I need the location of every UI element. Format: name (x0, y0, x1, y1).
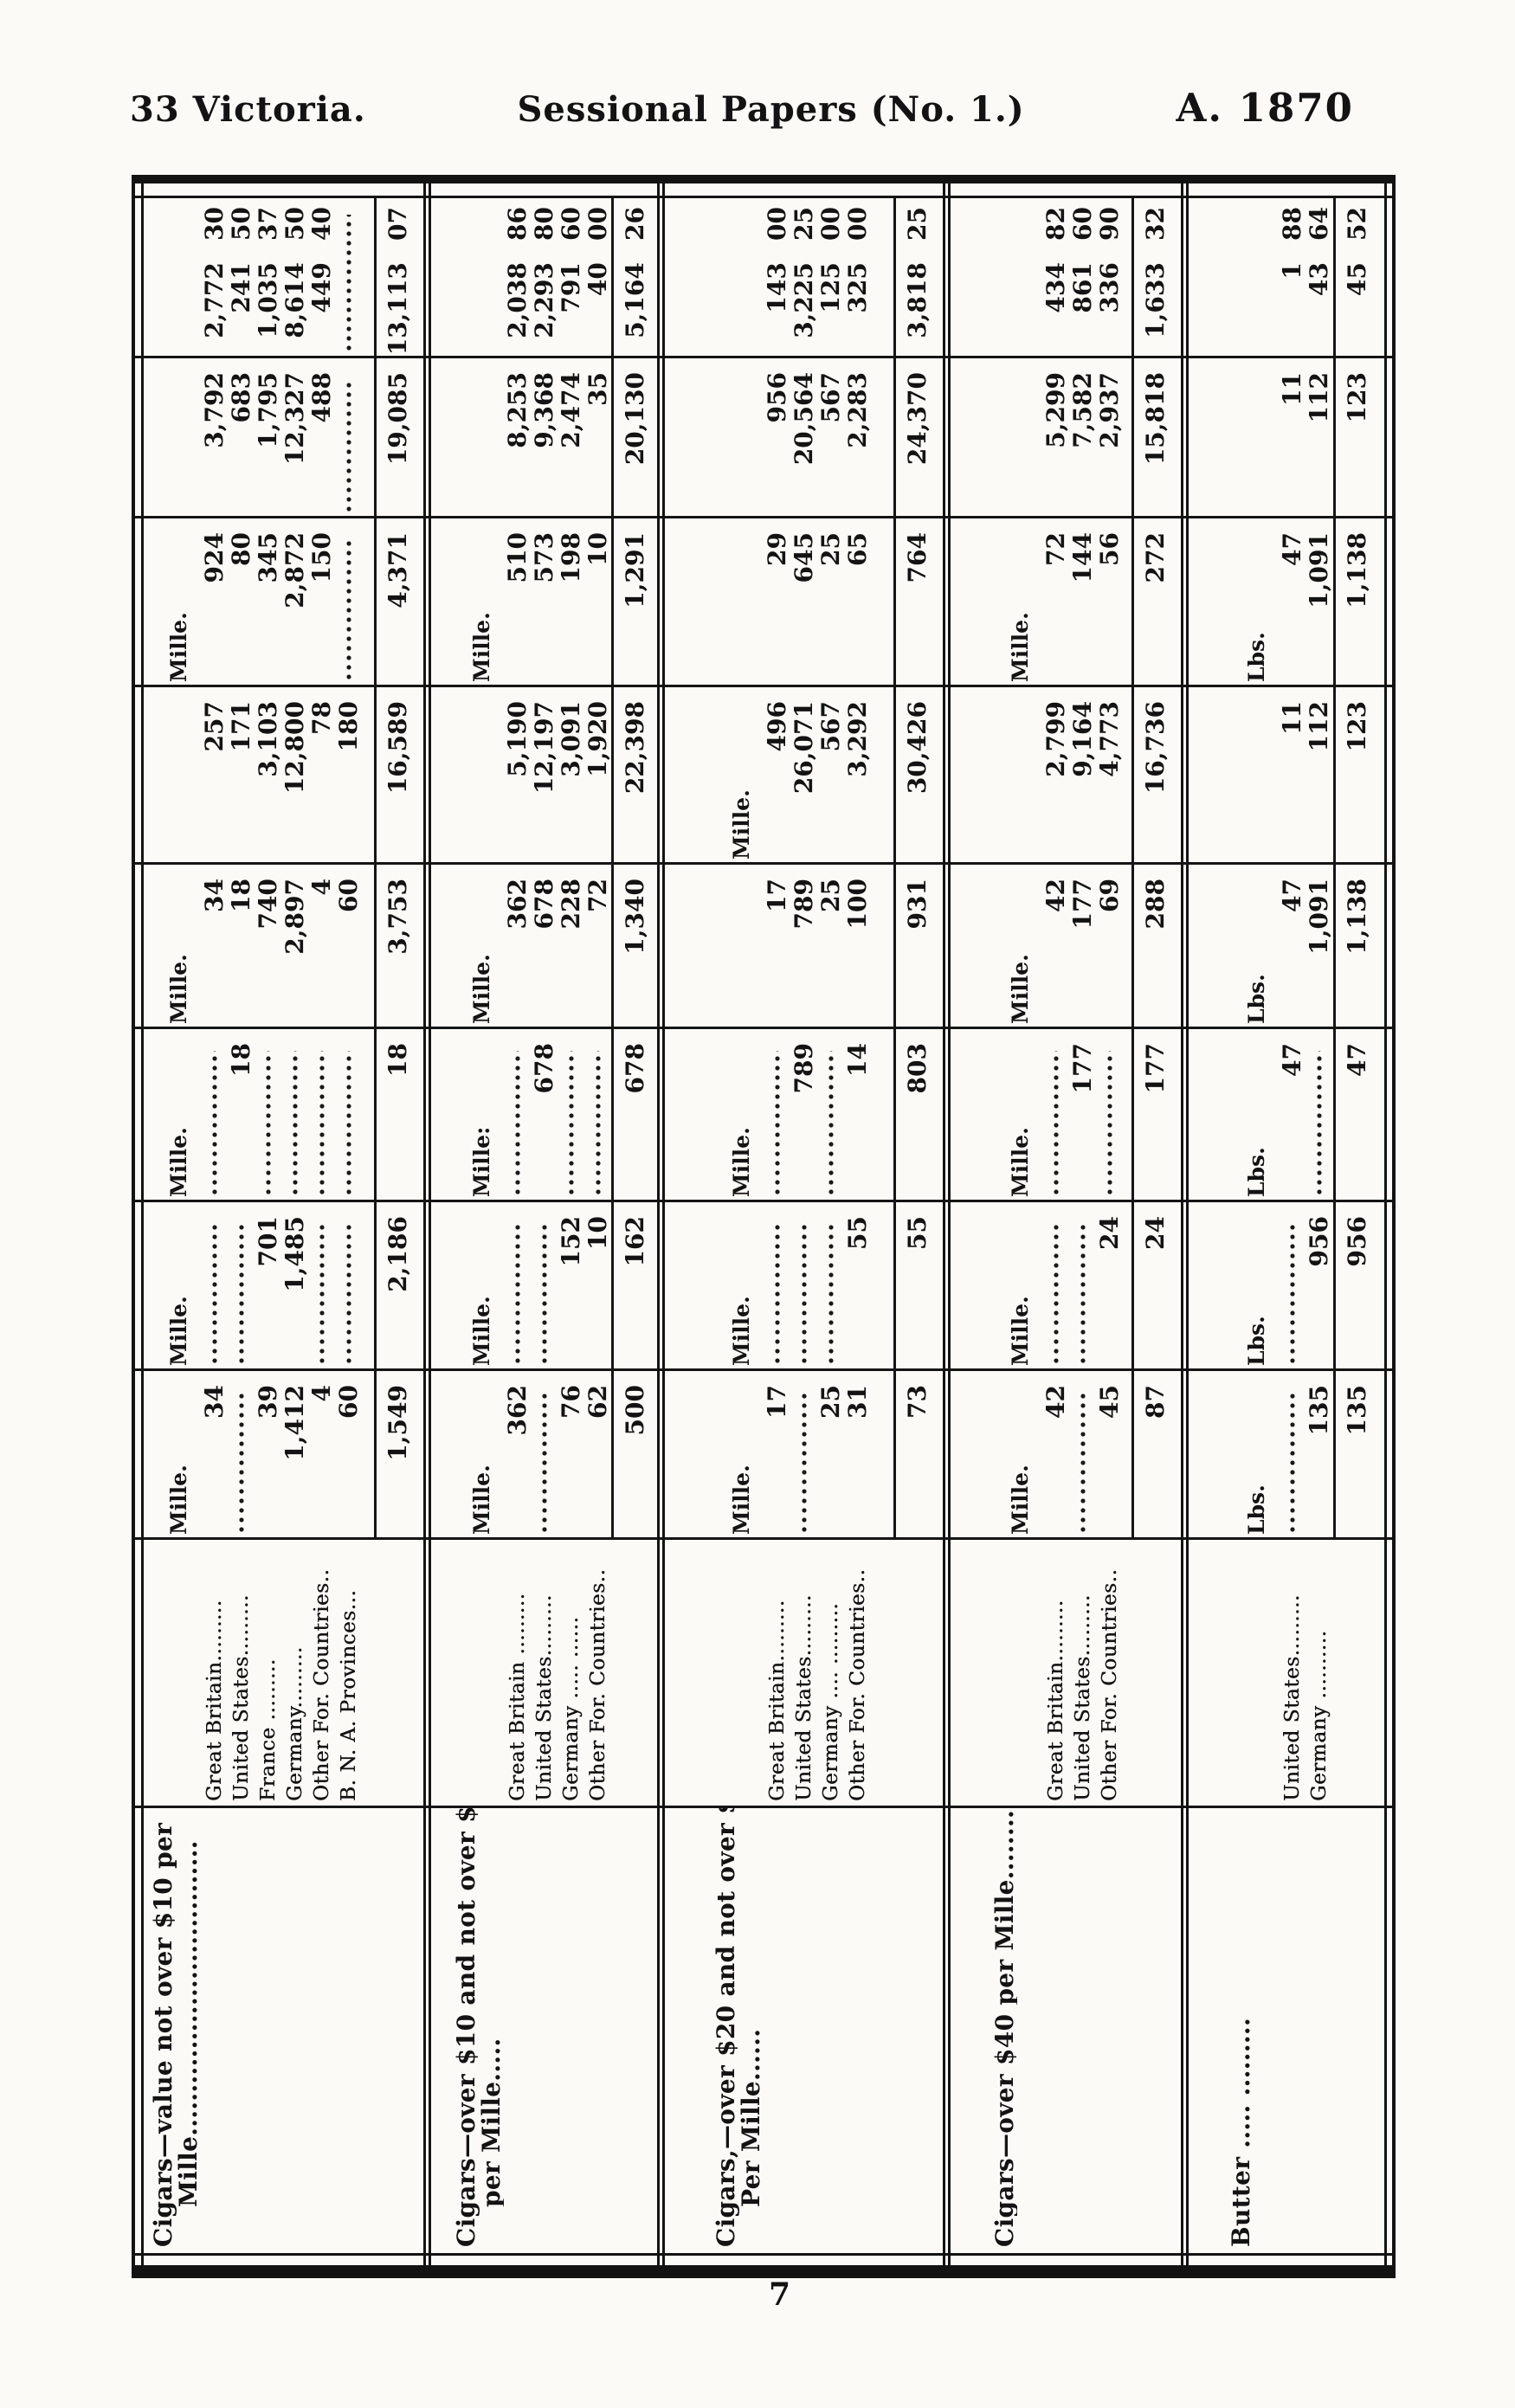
empty-cell-leader (346, 215, 351, 351)
empty-cell-leader (802, 1224, 807, 1363)
value-cell: 72 (583, 865, 612, 1029)
article-label: Cigars—over $10 and not over $20per Mill… (454, 1808, 504, 2247)
country-label: Great Britain......... (203, 1540, 226, 1808)
total-cell: 1,340 (621, 865, 649, 1029)
unit-label: Mille. (992, 1029, 1033, 1202)
value-cell: 789 (790, 1029, 818, 1202)
value-cell: 43 64 (1305, 198, 1333, 358)
article-label: Cigars—value not over $10 perMille......… (151, 1808, 201, 2247)
country-label: United States......... (793, 1540, 816, 1808)
value-cell: 152 (557, 1202, 585, 1371)
empty-cell-leader (775, 1224, 780, 1363)
country-label: Other For. Countries.. (1099, 1540, 1121, 1808)
value-cell: 2,293 80 (530, 198, 558, 358)
unit-label (454, 687, 469, 865)
article-row: Cigars—over $10 and not over $20per Mill… (454, 198, 504, 2247)
value-cell (1290, 1202, 1295, 1371)
value-cell: 42 (1041, 1371, 1070, 1540)
value-cell: 510 (503, 518, 532, 687)
totals-rule: 1,5492,186183,75316,5894,37119,08513,113… (374, 198, 419, 1540)
value-cell: 56 (1095, 518, 1124, 687)
empty-cell-leader (1290, 1393, 1295, 1532)
empty-cell-leader (346, 540, 351, 679)
unit-label: Mille. (992, 1371, 1033, 1540)
value-cell: 2,283 (843, 358, 872, 518)
total-cell: 1,291 (621, 518, 649, 687)
value-cell: 180 (334, 687, 363, 865)
article-label: Butter ..... ......... (1228, 1808, 1254, 2247)
country-label: Other For. Countries.. (311, 1540, 333, 1808)
unit-label: Lbs. (1228, 1029, 1269, 1202)
page-number: 7 (769, 2276, 790, 2313)
value-cell: 34 (200, 865, 229, 1029)
total-cell: 135 (1343, 1371, 1371, 1540)
country-label: United States......... (533, 1540, 556, 1808)
unit-label: Mille. (992, 865, 1033, 1029)
total-cell: 1,549 (384, 1371, 412, 1540)
value-cell: 24 (1095, 1202, 1124, 1371)
volume-label: 33 Victoria. (130, 89, 366, 130)
unit-label (151, 687, 166, 865)
table-row: United States.........78978926,07164520,… (790, 198, 817, 2247)
value-cell: 60 (334, 865, 363, 1029)
value-cell: 20,564 (790, 358, 818, 518)
unit-label: Lbs. (1228, 865, 1269, 1029)
empty-cell-leader (569, 1051, 574, 1194)
table-row: Other For. Countries..6210721,920103540 … (584, 198, 611, 2247)
value-cell (1054, 1029, 1059, 1202)
value-cell (346, 518, 351, 687)
value-cell: 62 (583, 1371, 612, 1540)
empty-cell-leader (515, 1224, 520, 1363)
value-cell: 65 (843, 518, 872, 687)
total-cell: 3,753 (384, 865, 412, 1029)
value-cell: 3,792 (200, 358, 229, 518)
value-cell: 45 (1095, 1371, 1124, 1540)
table-row: United States.........1771779,1641447,58… (1069, 198, 1096, 2247)
value-cell: 362 (503, 865, 532, 1029)
table-row: Great Britain .........3623625,1905108,2… (504, 198, 531, 2247)
value-cell: 60 (334, 1371, 363, 1540)
table-row: France .........397017403,1033451,7951,0… (255, 198, 281, 2247)
unit-label: Mille. (713, 1202, 754, 1371)
country-label: Germany......... (284, 1540, 306, 1808)
value-cell (515, 1202, 520, 1371)
total-cell: 931 (903, 865, 932, 1029)
value-cell: 42 (1041, 865, 1070, 1029)
value-cell: 26,071 (790, 687, 818, 865)
empty-cell-leader (1080, 1393, 1086, 1532)
value-cell: 573 (530, 518, 558, 687)
country-label: France ......... (257, 1540, 280, 1808)
value-cell: 72 (1041, 518, 1070, 687)
table-row: United States.........181817180683241 50 (228, 198, 255, 2247)
unit-label (992, 358, 1008, 518)
value-cell: 39 (254, 1371, 282, 1540)
value-cell: 55 (843, 1202, 872, 1371)
country-label: B. N. A. Provinces... (338, 1540, 360, 1808)
table-row: United States.........47471147111 88 (1279, 198, 1305, 2247)
empty-cell-leader (1107, 1051, 1112, 1194)
total-cell: 123 (1343, 687, 1371, 865)
value-cell: 956 (763, 358, 791, 518)
table-border-bottom (1384, 175, 1396, 2278)
value-cell: 496 (763, 687, 791, 865)
value-cell: 125 00 (816, 198, 845, 358)
value-cell: 2,872 (280, 518, 309, 687)
unit-label: Lbs. (1228, 518, 1269, 687)
value-cell: 78 (307, 687, 336, 865)
empty-cell-leader (1054, 1224, 1059, 1363)
value-cell: 100 (843, 865, 872, 1029)
total-cell: 24 (1141, 1202, 1170, 1371)
value-cell: 35 (583, 358, 612, 518)
value-cell (212, 1029, 217, 1202)
value-cell: 434 82 (1041, 198, 1070, 358)
article-row: Cigars—value not over $10 perMille......… (151, 198, 201, 2247)
value-cell: 8,253 (503, 358, 532, 518)
total-cell: 500 (621, 1371, 649, 1540)
total-cell: 764 (903, 518, 932, 687)
value-cell: 177 (1068, 865, 1097, 1029)
total-row: 135956471,1381231,13812345 52 (1333, 198, 1378, 2247)
value-cell: 1,412 (280, 1371, 309, 1540)
unit-label: Mille. (151, 1202, 191, 1371)
running-head: 33 Victoria. Sessional Papers (No. 1.) A… (130, 85, 1354, 131)
value-cell: 678 (530, 1029, 558, 1202)
table-row: Germany .... .........252556725567125 00 (817, 198, 844, 2247)
value-cell (319, 1029, 325, 1202)
value-cell: 25 (816, 518, 845, 687)
unit-label: Mille. (151, 1029, 191, 1202)
value-cell: 488 (307, 358, 336, 518)
total-cell: 272 (1141, 518, 1170, 687)
total-cell: 19,085 (384, 358, 412, 518)
total-cell: 1,138 (1343, 518, 1371, 687)
empty-cell-leader (319, 1224, 325, 1363)
total-cell: 288 (1141, 865, 1170, 1029)
value-cell (346, 1202, 351, 1371)
value-cell: 14 (843, 1029, 872, 1202)
table-row: Other For. Countries..4524694,773562,937… (1096, 198, 1123, 2247)
empty-cell-leader (346, 1051, 351, 1194)
value-cell: 47 (1278, 865, 1306, 1029)
total-cell: 1,138 (1343, 865, 1371, 1029)
value-cell: 3,225 25 (790, 198, 818, 358)
empty-cell-leader (1054, 1051, 1059, 1194)
unit-label: Mille: (454, 1029, 494, 1202)
country-label: Germany .......... (1308, 1540, 1331, 1808)
value-cell: 701 (254, 1202, 282, 1371)
paper-title: Sessional Papers (No. 1.) (518, 89, 1025, 130)
value-cell (515, 1029, 520, 1202)
unit-label (454, 358, 469, 518)
empty-cell-leader (775, 1051, 780, 1194)
value-cell (239, 1202, 244, 1371)
value-cell: 4 (307, 865, 336, 1029)
value-cell (319, 1202, 325, 1371)
value-cell (828, 1029, 834, 1202)
total-cell: 678 (621, 1029, 649, 1202)
table-row: B. N. A. Provinces...6060180 (335, 198, 362, 2247)
article-group-2: Cigars—over $10 and not over $20per Mill… (431, 175, 665, 2278)
article-row: Cigars—over $40 per Mille.........Mille.… (992, 198, 1042, 2247)
country-label: Other For. Countries.. (587, 1540, 609, 1808)
table-row: Germany ..... ......761522283,0911982,47… (558, 198, 584, 2247)
unit-label (713, 198, 729, 358)
value-cell (239, 1371, 244, 1540)
value-cell: 567 (816, 687, 845, 865)
value-cell (212, 1202, 217, 1371)
table-row: Great Britain.........34342579243,7922,7… (201, 198, 228, 2247)
total-cell: 45 52 (1343, 198, 1371, 358)
value-cell: 257 (200, 687, 229, 865)
unit-label: Mille. (454, 518, 494, 687)
value-cell: 31 (843, 1371, 872, 1540)
unit-label (1228, 358, 1244, 518)
empty-cell-leader (1317, 1051, 1322, 1194)
article-label: Cigars,—over $20 and not over $40Per Mil… (713, 1808, 764, 2247)
value-cell (266, 1029, 271, 1202)
unit-label (1228, 198, 1244, 358)
value-cell: 76 (557, 1371, 585, 1540)
value-cell: 10 (583, 518, 612, 687)
value-cell (775, 1029, 780, 1202)
value-cell (569, 1029, 574, 1202)
value-cell: 7,582 (1068, 358, 1097, 518)
value-cell: 9,368 (530, 358, 558, 518)
total-cell: 16,589 (384, 687, 412, 865)
unit-label: Mille. (713, 1029, 754, 1202)
value-cell: 2,897 (280, 865, 309, 1029)
value-cell: 25 (816, 1371, 845, 1540)
total-cell: 2,186 (384, 1202, 412, 1371)
country-label: United States......... (230, 1540, 253, 1808)
article-group-5: Butter ..... .........Lbs.Lbs.Lbs.Lbs.Lb… (1189, 175, 1383, 2278)
value-cell: 789 (790, 865, 818, 1029)
empty-cell-leader (239, 1224, 244, 1363)
total-cell: 87 (1141, 1371, 1170, 1540)
empty-cell-leader (319, 1051, 325, 1194)
article-group-1: Cigars—value not over $10 perMille......… (145, 175, 431, 2278)
unit-label: Mille. (992, 518, 1033, 687)
value-cell: 17 (763, 865, 791, 1029)
empty-cell-leader (1290, 1224, 1295, 1363)
value-cell: 791 60 (557, 198, 585, 358)
table-groups: Cigars—value not over $10 perMille......… (145, 175, 1383, 2278)
empty-cell-leader (346, 379, 351, 511)
value-cell (1054, 1202, 1059, 1371)
empty-cell-leader (542, 1393, 547, 1532)
table-row: United States.........67867812,1975739,3… (531, 198, 558, 2247)
unit-label (713, 518, 729, 687)
value-cell: 47 (1278, 1029, 1306, 1202)
total-row: 735580393130,42676424,3703,818 25 (893, 198, 938, 2247)
value-cell: 17 (763, 1371, 791, 1540)
empty-cell-leader (828, 1224, 834, 1363)
total-cell: 5,164 26 (621, 198, 649, 358)
empty-cell-leader (515, 1051, 520, 1194)
country-label: United States......... (1281, 1540, 1304, 1808)
value-cell: 924 (200, 518, 229, 687)
table-row: Germany.........1,4121,4852,89712,8002,8… (281, 198, 308, 2247)
country-label: United States......... (1072, 1540, 1094, 1808)
total-cell: 956 (1343, 1202, 1371, 1371)
value-cell: 3,091 (557, 687, 585, 865)
value-cell: 177 (1068, 1029, 1097, 1202)
totals-rule: 872417728816,73627215,8181,633 32 (1131, 198, 1177, 1540)
value-cell (1290, 1371, 1295, 1540)
value-cell (1107, 1029, 1112, 1202)
total-cell: 4,371 (384, 518, 412, 687)
article-title-line: Cigars—over $10 and not over $20 (454, 1808, 479, 2247)
empty-cell-leader (293, 1051, 298, 1194)
article-row: Butter ..... .........Lbs.Lbs.Lbs.Lbs.Lb… (1228, 198, 1279, 2247)
unit-label (992, 198, 1008, 358)
unit-label: Mille. (454, 865, 494, 1029)
total-cell: 803 (903, 1029, 932, 1202)
empty-cell-leader (828, 1051, 834, 1194)
value-cell: 5,190 (503, 687, 532, 865)
article-group-4: Cigars—over $40 per Mille.........Mille.… (951, 175, 1189, 2278)
article-title-line: Cigars—value not over $10 per (151, 1808, 176, 2247)
total-cell: 24,370 (903, 358, 932, 518)
value-cell (542, 1202, 547, 1371)
value-cell (346, 358, 351, 518)
total-cell: 15,818 (1141, 358, 1170, 518)
unit-label: Mille. (151, 518, 191, 687)
value-cell (775, 1202, 780, 1371)
empty-cell-leader (542, 1224, 547, 1363)
unit-label: Mille. (454, 1202, 494, 1371)
value-cell: 11 (1278, 687, 1306, 865)
total-row: 872417728816,73627215,8181,633 32 (1131, 198, 1177, 2247)
value-cell (1317, 1029, 1322, 1202)
value-cell: 4,773 (1095, 687, 1124, 865)
article-row: Cigars,—over $20 and not over $40Per Mil… (713, 198, 764, 2247)
value-cell: 12,800 (280, 687, 309, 865)
value-cell: 740 (254, 865, 282, 1029)
unit-label: Mille. (454, 1371, 494, 1540)
empty-cell-leader (1080, 1224, 1086, 1363)
value-cell: 10 (583, 1202, 612, 1371)
table-row: Germany ..........1359561,0911121,091112… (1305, 198, 1332, 2247)
value-cell: 567 (816, 358, 845, 518)
table-row: Great Britain.........171749629956143 00 (764, 198, 790, 2247)
value-cell (802, 1371, 807, 1540)
article-group-3: Cigars,—over $20 and not over $40Per Mil… (665, 175, 951, 2278)
unit-label (151, 358, 166, 518)
value-cell: 25 (816, 865, 845, 1029)
value-cell: 241 50 (227, 198, 255, 358)
empty-cell-leader (802, 1393, 807, 1532)
total-row: 5001626781,34022,3981,29120,1305,164 26 (611, 198, 656, 2247)
unit-label (992, 687, 1008, 865)
value-cell (1080, 1202, 1086, 1371)
country-label: Great Britain......... (766, 1540, 789, 1808)
total-cell: 3,818 25 (903, 198, 932, 358)
value-cell: 18 (227, 1029, 255, 1202)
value-cell (346, 1029, 351, 1202)
value-cell: 683 (227, 358, 255, 518)
table-border-top (132, 175, 144, 2278)
total-row: 1,5492,186183,75316,5894,37119,08513,113… (374, 198, 419, 2247)
value-cell (346, 198, 351, 358)
value-cell: 144 (1068, 518, 1097, 687)
unit-label: Lbs. (1228, 1202, 1269, 1371)
empty-cell-leader (212, 1224, 217, 1363)
article-title-line: Butter ..... ......... (1228, 1808, 1254, 2247)
value-cell: 1,920 (583, 687, 612, 865)
table-row: Great Britain.........42422,799725,29943… (1042, 198, 1069, 2247)
country-label: Great Britain......... (1045, 1540, 1067, 1808)
unit-label (1228, 687, 1244, 865)
value-cell: 12,197 (530, 687, 558, 865)
value-cell: 336 90 (1095, 198, 1124, 358)
value-cell: 678 (530, 865, 558, 1029)
unit-label: Mille. (151, 1371, 191, 1540)
country-label: Great Britain ......... (506, 1540, 529, 1808)
value-cell: 29 (763, 518, 791, 687)
value-cell (828, 1202, 834, 1371)
value-cell: 2,474 (557, 358, 585, 518)
value-cell: 80 (227, 518, 255, 687)
value-cell (293, 1029, 298, 1202)
value-cell: 69 (1095, 865, 1124, 1029)
value-cell: 34 (200, 1371, 229, 1540)
value-cell: 171 (227, 687, 255, 865)
total-cell: 55 (903, 1202, 932, 1371)
value-cell: 1,485 (280, 1202, 309, 1371)
value-cell: 135 (1305, 1371, 1333, 1540)
total-cell: 47 (1343, 1029, 1371, 1202)
value-cell: 9,164 (1068, 687, 1097, 865)
value-cell (542, 1371, 547, 1540)
value-cell (596, 1029, 601, 1202)
value-cell: 112 (1305, 687, 1333, 865)
total-cell: 20,130 (621, 358, 649, 518)
country-label: Germany ..... ...... (560, 1540, 583, 1808)
value-cell: 5,299 (1041, 358, 1070, 518)
total-cell: 177 (1141, 1029, 1170, 1202)
value-cell: 11 (1278, 358, 1306, 518)
unit-label: Mille. (151, 865, 191, 1029)
unit-label (713, 865, 729, 1029)
article-title-line: Cigars,—over $20 and not over $40 (713, 1808, 738, 2247)
value-cell: 1,091 (1305, 518, 1333, 687)
value-cell: 2,799 (1041, 687, 1070, 865)
country-label: Other For. Countries.. (847, 1540, 869, 1808)
unit-label: Mille. (713, 1371, 754, 1540)
empty-cell-leader (596, 1051, 601, 1194)
unit-label (454, 198, 469, 358)
empty-cell-leader (266, 1051, 271, 1194)
article-title-line: Cigars—over $40 per Mille......... (992, 1808, 1017, 2247)
unit-label (151, 198, 166, 358)
value-cell: 1,795 (254, 358, 282, 518)
value-cell (802, 1202, 807, 1371)
value-cell: 150 (307, 518, 336, 687)
value-cell: 2,937 (1095, 358, 1124, 518)
value-cell: 362 (503, 1371, 532, 1540)
total-cell: 13,113 07 (384, 198, 412, 358)
value-cell: 40 00 (583, 198, 612, 358)
unit-label: Mille. (713, 687, 754, 865)
totals-rule: 735580393130,42676424,3703,818 25 (893, 198, 938, 1540)
total-cell: 73 (903, 1371, 932, 1540)
article-title-line: Per Mille...... (738, 1808, 764, 2247)
total-cell: 16,736 (1141, 687, 1170, 865)
